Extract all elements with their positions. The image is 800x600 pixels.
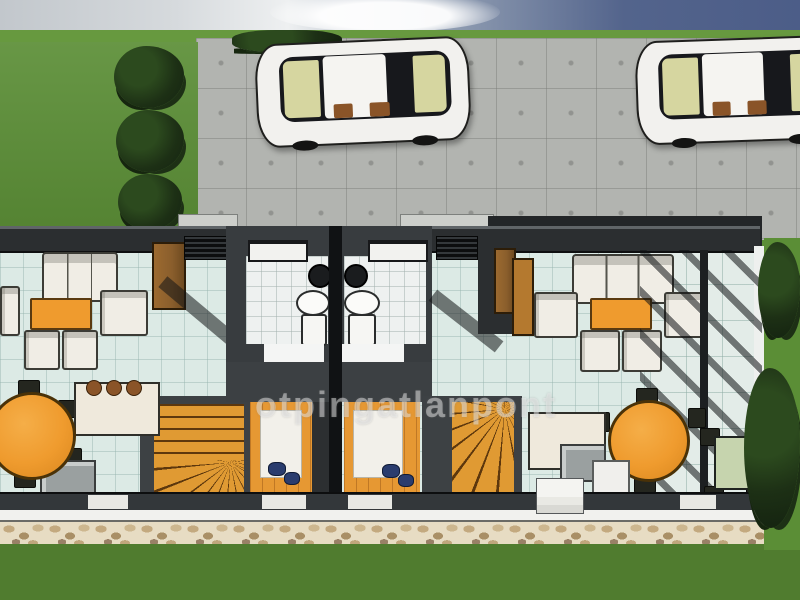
window-opening (348, 495, 392, 509)
bar-stool (86, 380, 102, 396)
pergola-beam (700, 250, 708, 504)
vanity-right (368, 240, 428, 262)
wood-panel-right (512, 258, 534, 336)
shoes (398, 474, 414, 487)
shoes (268, 462, 286, 476)
shoes (382, 464, 400, 478)
party-wall (329, 226, 342, 498)
toilet-left-tank (301, 314, 327, 346)
toilet-right (344, 290, 380, 316)
door-threshold-left (264, 344, 324, 362)
vanity-left (248, 240, 308, 262)
car-windshield (282, 60, 321, 119)
parked-car-2 (634, 34, 800, 145)
cabinet-grille-right (436, 236, 478, 260)
car-windshield (662, 57, 700, 115)
shoes (284, 472, 300, 485)
window-opening (88, 495, 128, 509)
staircase-left-winders (154, 460, 244, 492)
window-opening (680, 495, 716, 509)
watermark: otpingatlanpont (218, 382, 594, 428)
toilet-left (296, 290, 330, 316)
floor-plan-3d-rendering: otpingatlanpont (0, 0, 800, 600)
toilet-right-tank (348, 314, 376, 346)
armchair (580, 330, 620, 372)
armchair (0, 286, 20, 336)
coffee-table-left (30, 298, 92, 330)
car-seat (334, 104, 354, 118)
armchair (62, 330, 98, 370)
car-seat (748, 101, 767, 115)
washbasin-right (344, 264, 368, 288)
window-opening (262, 495, 306, 509)
car-rear-window (790, 53, 800, 111)
armchair (534, 292, 578, 338)
door-threshold-right (342, 344, 404, 362)
porch-steps (536, 478, 584, 514)
car-rear-window (413, 54, 448, 113)
bar-stool (106, 380, 122, 396)
front-lawn (0, 544, 800, 600)
armchair (24, 330, 60, 370)
bar-stool (126, 380, 142, 396)
armchair (100, 290, 148, 336)
dining-chair (688, 408, 706, 428)
parked-car-1 (254, 35, 472, 148)
car-seat (712, 102, 731, 116)
car-seat (370, 102, 390, 116)
